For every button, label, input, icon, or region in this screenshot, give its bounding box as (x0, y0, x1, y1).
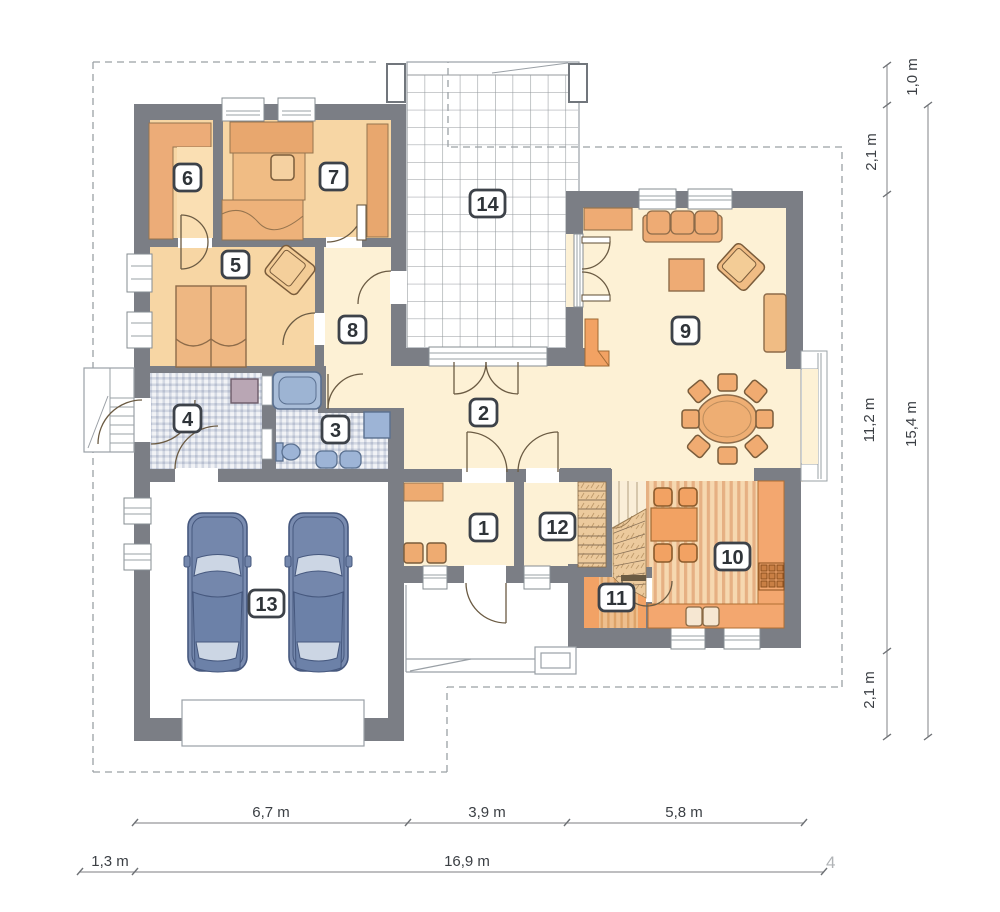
svg-text:4: 4 (826, 853, 835, 872)
svg-text:11,2 m: 11,2 m (861, 398, 878, 443)
svg-text:8: 8 (347, 320, 358, 342)
svg-text:16,9 m: 16,9 m (444, 853, 490, 870)
svg-text:6: 6 (182, 168, 193, 190)
svg-text:1,0 m: 1,0 m (904, 58, 921, 96)
svg-text:3: 3 (330, 420, 341, 442)
svg-text:1,3 m: 1,3 m (91, 853, 129, 870)
svg-text:2: 2 (478, 403, 489, 425)
svg-text:5,8 m: 5,8 m (665, 804, 703, 821)
svg-text:11: 11 (606, 588, 627, 610)
svg-text:1: 1 (478, 518, 489, 540)
svg-text:3,9 m: 3,9 m (468, 804, 506, 821)
svg-text:4: 4 (182, 409, 194, 431)
svg-text:10: 10 (721, 547, 743, 569)
svg-text:2,1 m: 2,1 m (861, 671, 878, 709)
svg-text:5: 5 (230, 255, 241, 277)
svg-text:12: 12 (546, 517, 568, 539)
svg-text:15,4 m: 15,4 m (903, 401, 920, 447)
svg-text:14: 14 (476, 194, 499, 216)
svg-text:9: 9 (680, 321, 691, 343)
svg-text:6,7 m: 6,7 m (252, 804, 290, 821)
svg-text:7: 7 (328, 167, 339, 189)
svg-text:13: 13 (255, 594, 277, 616)
svg-text:2,1 m: 2,1 m (863, 133, 880, 171)
